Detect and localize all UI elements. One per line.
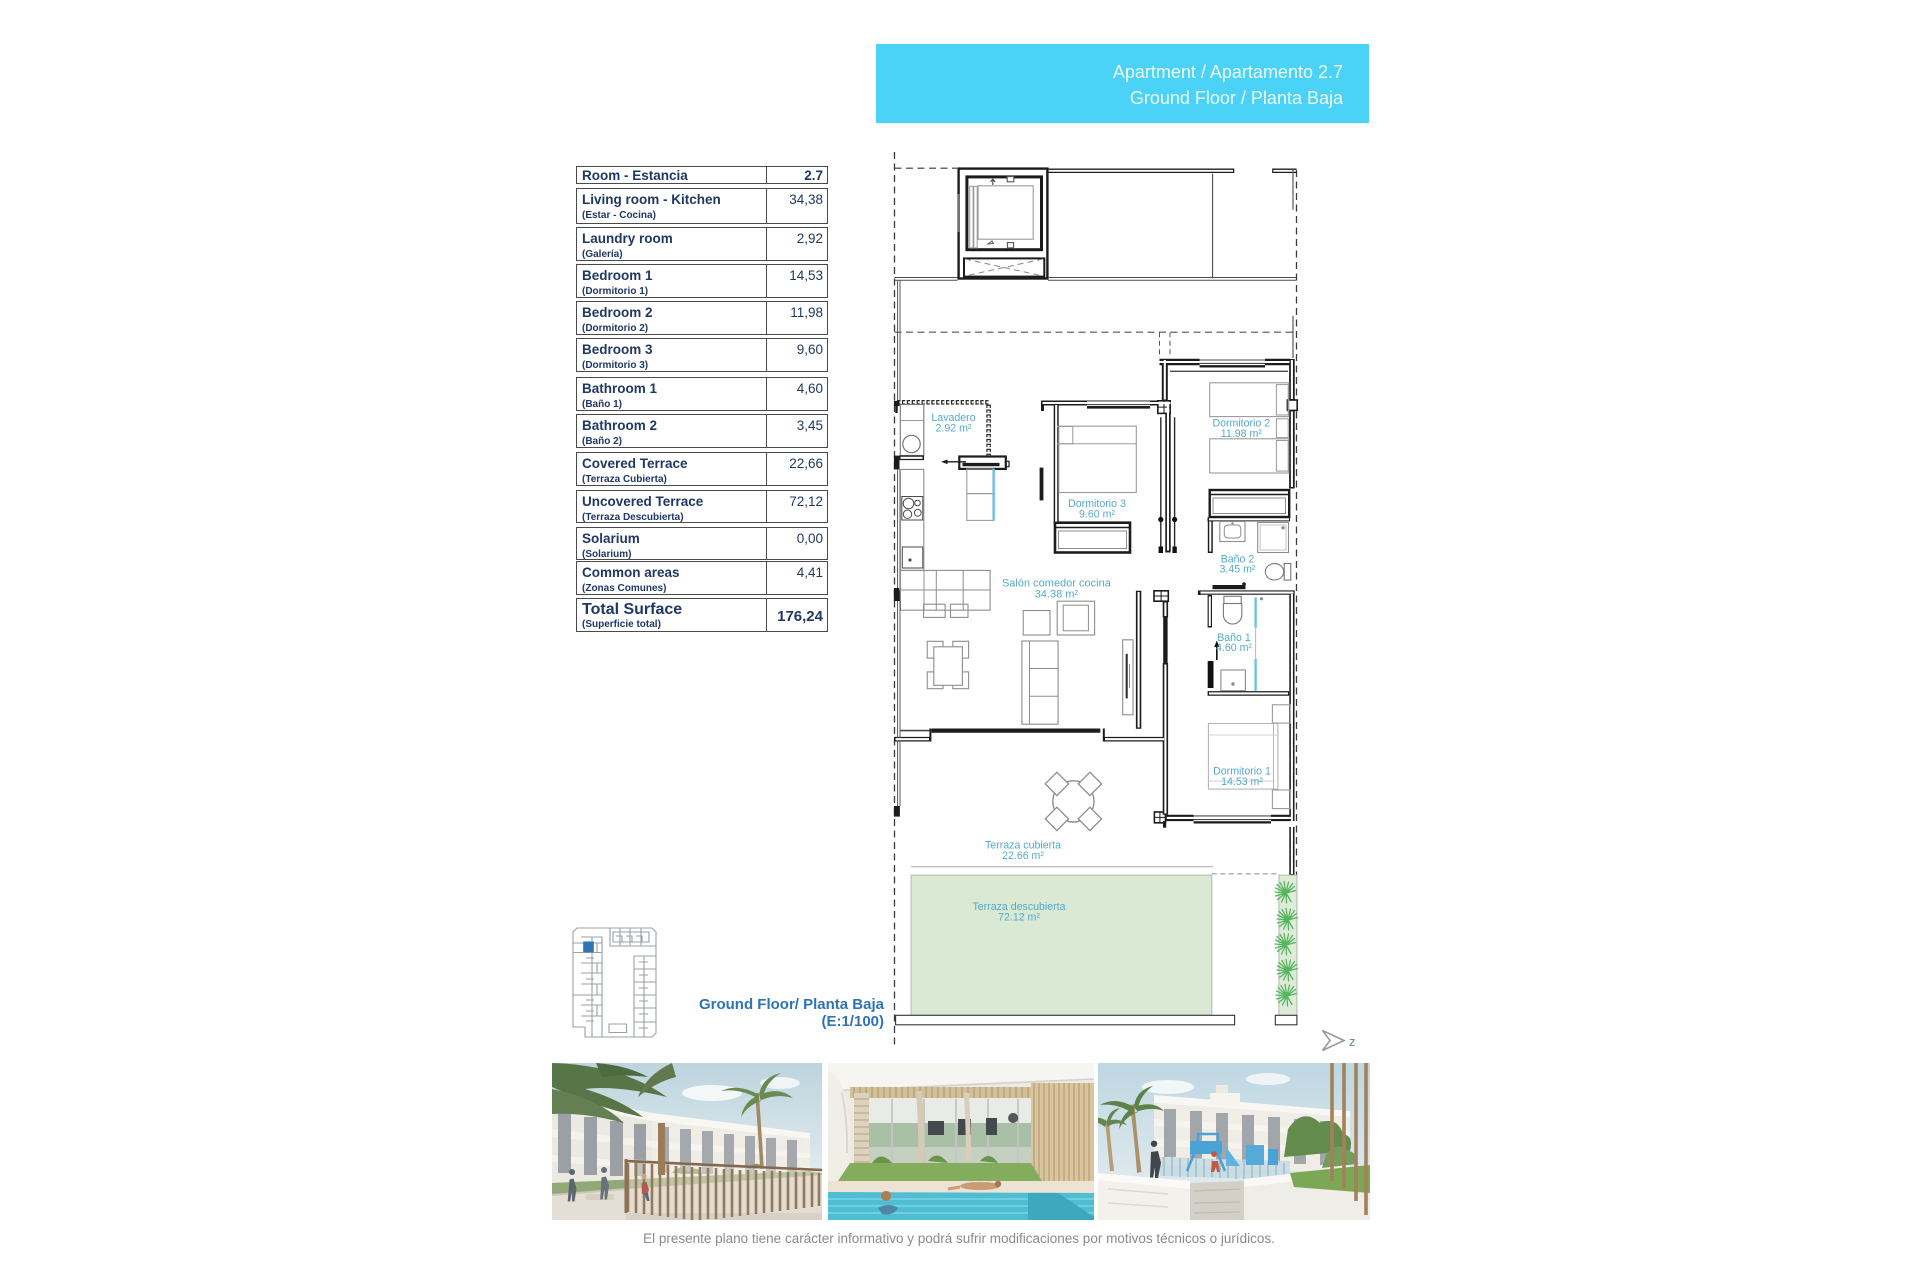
svg-text:9.60 m²: 9.60 m² [1079, 509, 1115, 521]
svg-text:2.92 m²: 2.92 m² [936, 423, 972, 435]
svg-text:72.12 m²: 72.12 m² [998, 912, 1040, 924]
svg-text:4.60 m²: 4.60 m² [1216, 642, 1252, 654]
svg-text:3.45 m²: 3.45 m² [1220, 564, 1256, 576]
svg-text:14.53 m²: 14.53 m² [1221, 776, 1263, 788]
svg-text:z: z [1349, 1034, 1356, 1049]
svg-text:34.38 m²: 34.38 m² [1035, 589, 1079, 601]
svg-text:22.66 m²: 22.66 m² [1002, 850, 1044, 862]
svg-text:11.98 m²: 11.98 m² [1221, 428, 1262, 440]
